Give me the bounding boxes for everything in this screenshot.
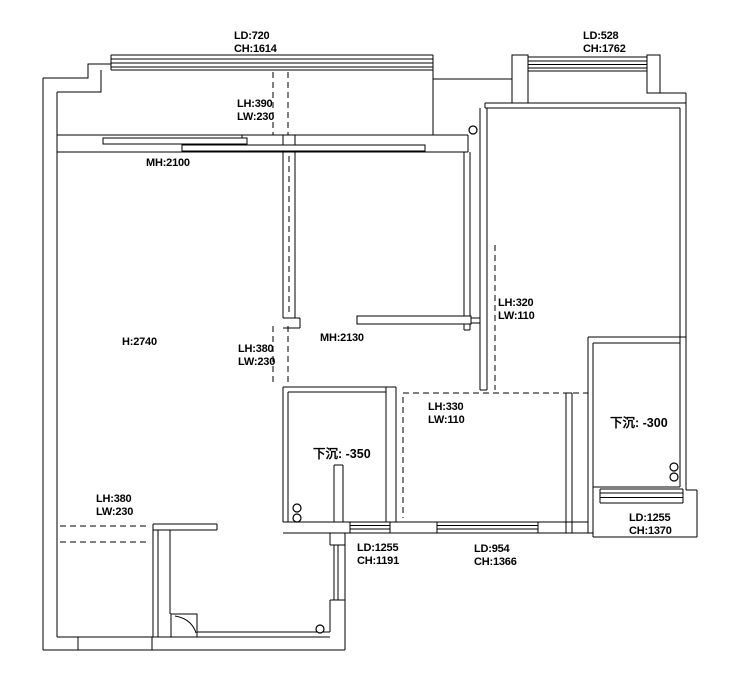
label-sunken-right: 下沉: -300 — [610, 415, 668, 430]
annotation-labels: LD:720 CH:1614 LD:528 CH:1762 LH:390 LW:… — [96, 30, 672, 568]
label-bottom-left-beam-line2: LW:230 — [96, 506, 133, 518]
pillars — [512, 55, 660, 103]
entry-door — [171, 614, 197, 637]
window-bathroom-side — [330, 545, 345, 600]
label-top-door-height: MH:2100 — [146, 157, 190, 169]
floor-plan-canvas: LD:720 CH:1614 LD:528 CH:1762 LH:390 LW:… — [0, 0, 750, 693]
sliding-panel-mid — [357, 316, 471, 324]
label-bottom-right-window-line1: LD:1255 — [629, 512, 670, 524]
drain-circle — [670, 463, 678, 471]
floor-plan-drawing: LD:720 CH:1614 LD:528 CH:1762 LH:390 LW:… — [0, 0, 750, 693]
label-top-right-window-line1: LD:528 — [583, 30, 619, 42]
label-kitchen-beam-line1: LH:330 — [428, 401, 464, 413]
label-bottom-left-window-line1: LD:1255 — [357, 542, 398, 554]
drain-circle — [293, 504, 301, 512]
label-top-left-window-line2: CH:1614 — [234, 43, 278, 55]
label-ceiling-height: H:2740 — [122, 336, 157, 348]
label-balcony-beam-line2: LW:230 — [237, 111, 274, 123]
label-bottom-right-window-line2: CH:1370 — [629, 525, 672, 537]
label-mid-beam-line1: LH:380 — [238, 343, 274, 355]
window-bottom-left — [350, 522, 390, 533]
drain-circle — [293, 514, 301, 522]
window-bottom-right — [600, 489, 683, 503]
sliding-panel-top-1 — [103, 138, 247, 144]
label-sunken-left: 下沉: -350 — [313, 446, 371, 461]
door-swing-arc — [175, 616, 196, 633]
door-leaf — [171, 614, 197, 637]
label-bottom-left-window-line2: CH:1191 — [357, 555, 399, 567]
window-top-left — [111, 55, 433, 70]
window-bottom-mid — [437, 522, 538, 533]
window-top-right — [528, 57, 647, 71]
label-top-left-window-line1: LD:720 — [234, 30, 270, 42]
drain-circle — [670, 473, 678, 481]
label-right-beam-line1: LH:320 — [498, 297, 534, 309]
label-kitchen-beam-line2: LW:110 — [428, 414, 465, 426]
label-mid-door-height: MH:2130 — [320, 332, 364, 344]
label-mid-beam-line2: LW:230 — [238, 356, 275, 368]
label-balcony-beam-line1: LH:390 — [237, 98, 273, 110]
drain-circle — [316, 625, 324, 633]
drain-circle — [469, 126, 477, 134]
label-bottom-mid-window-line1: LD:954 — [474, 543, 511, 555]
label-top-right-window-line2: CH:1762 — [583, 43, 626, 55]
label-bottom-left-beam-line1: LH:380 — [96, 493, 132, 505]
label-bottom-mid-window-line2: CH:1366 — [474, 556, 517, 568]
sliding-panel-top-2 — [182, 145, 425, 151]
label-right-beam-line2: LW:110 — [498, 310, 535, 322]
